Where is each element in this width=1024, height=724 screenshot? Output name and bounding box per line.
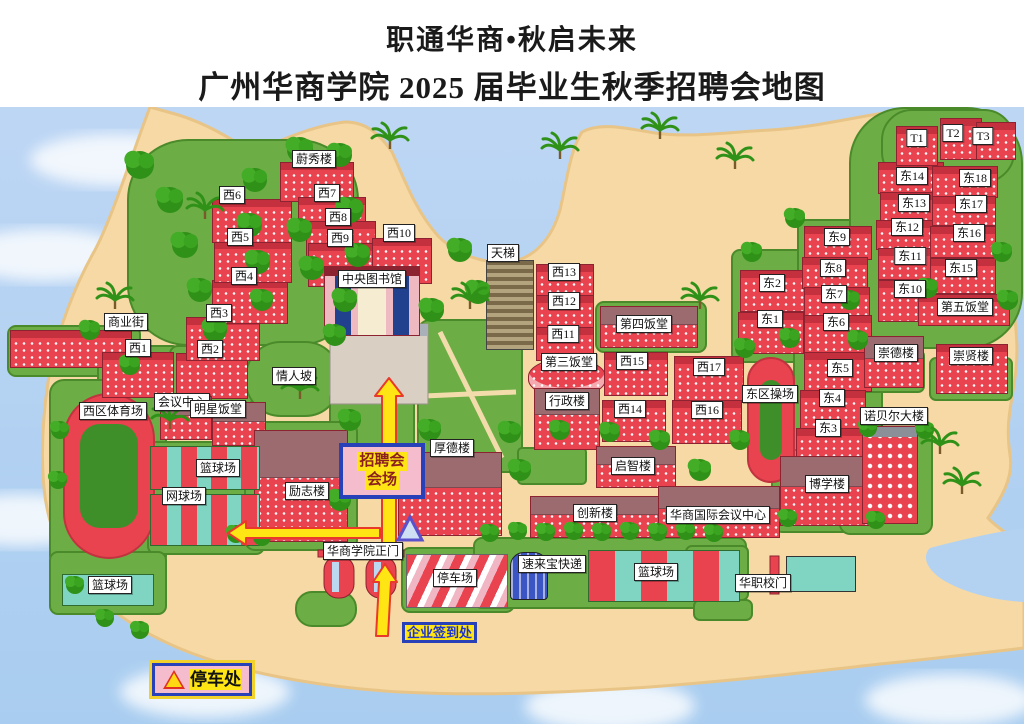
tree-icon <box>688 459 711 481</box>
map-label-网球场: 网球场 <box>162 487 206 505</box>
map-label-篮球场: 篮球场 <box>634 563 678 581</box>
map-label-第五饭堂: 第五饭堂 <box>937 298 993 316</box>
tree-icon <box>508 522 527 540</box>
tree-icon <box>784 208 805 228</box>
map-label-明星饭堂: 明星饭堂 <box>190 400 246 418</box>
palm-tree-icon <box>97 283 133 309</box>
venue-label-line1: 招聘会 <box>357 452 406 471</box>
map-label-东4: 东4 <box>819 389 845 407</box>
map-label-东3: 东3 <box>815 419 841 437</box>
palm-tree-icon <box>944 468 980 494</box>
route-arrow-gate-entry <box>373 564 397 636</box>
map-label-西14: 西14 <box>614 400 646 418</box>
map-label-西4: 西4 <box>231 267 257 285</box>
map-label-行政楼: 行政楼 <box>545 392 589 410</box>
map-label-华商学院正门: 华商学院正门 <box>323 542 403 560</box>
map-label-西1: 西1 <box>125 339 151 357</box>
map-label-西10: 西10 <box>383 224 415 242</box>
map-label-第四饭堂: 第四饭堂 <box>616 315 672 333</box>
tree-icon <box>419 298 444 322</box>
company-signin-callout: 企业签到处 <box>402 622 477 643</box>
palm-tree-icon <box>452 283 488 309</box>
map-label-T2: T2 <box>942 124 963 142</box>
map-label-诺贝尔大楼: 诺贝尔大楼 <box>860 407 928 425</box>
map-label-东8: 东8 <box>820 259 846 277</box>
map-label-东6: 东6 <box>823 313 849 331</box>
map-label-西8: 西8 <box>325 208 351 226</box>
map-label-篮球场: 篮球场 <box>196 459 240 477</box>
job-fair-venue-callout: 招聘会 会场 <box>339 443 425 499</box>
tree-icon <box>130 621 149 639</box>
map-label-篮球场: 篮球场 <box>88 576 132 594</box>
tree-icon <box>418 419 441 441</box>
map-label-东9: 东9 <box>824 228 850 246</box>
warning-triangle-icon <box>163 670 185 689</box>
map-label-西6: 西6 <box>219 186 245 204</box>
map-label-中央图书馆: 中央图书馆 <box>338 270 406 288</box>
building <box>862 426 918 524</box>
palm-tree-icon <box>542 133 578 159</box>
tree-icon <box>447 238 472 262</box>
palm-tree-icon <box>372 123 408 149</box>
map-label-西15: 西15 <box>616 352 648 370</box>
tree-icon <box>508 459 531 481</box>
tree-icon <box>242 168 267 192</box>
map-label-西13: 西13 <box>548 263 580 281</box>
map-label-东5: 东5 <box>827 359 853 377</box>
tree-icon <box>50 421 69 439</box>
tree-icon <box>124 151 154 179</box>
map-label-蔚秀楼: 蔚秀楼 <box>292 150 336 168</box>
tree-icon <box>95 609 114 627</box>
map-label-西3: 西3 <box>206 304 232 322</box>
map-label-速来宝快递: 速来宝快递 <box>518 555 586 573</box>
map-label-励志楼: 励志楼 <box>285 482 329 500</box>
building <box>102 352 174 398</box>
palm-tree-icon <box>717 143 753 169</box>
map-label-东10: 东10 <box>894 280 926 298</box>
parking-callout: 停车处 <box>152 663 252 696</box>
tree-icon <box>48 471 67 489</box>
map-title: 广州华商学院 2025 届毕业生秋季招聘会地图 <box>0 62 1024 107</box>
map-label-东13: 东13 <box>898 194 930 212</box>
map-label-东16: 东16 <box>953 224 985 242</box>
map-label-华商国际会议中心: 华商国际会议中心 <box>666 506 770 524</box>
map-label-情人坡: 情人坡 <box>272 367 316 385</box>
map-label-西区体育场: 西区体育场 <box>79 402 147 420</box>
map-label-西17: 西17 <box>693 358 725 376</box>
map-label-创新楼: 创新楼 <box>573 504 617 522</box>
map-label-博学楼: 博学楼 <box>805 475 849 493</box>
tree-icon <box>187 278 212 302</box>
map-label-西11: 西11 <box>547 325 579 343</box>
parking-label: 停车处 <box>190 669 241 690</box>
map-label-停车场: 停车场 <box>433 569 477 587</box>
map-label-东12: 东12 <box>891 218 923 236</box>
map-label-第三饭堂: 第三饭堂 <box>541 353 597 371</box>
sky-ladder-steps <box>486 260 534 350</box>
map-label-西5: 西5 <box>227 228 253 246</box>
tree-icon <box>498 421 521 443</box>
map-label-东1: 东1 <box>757 310 783 328</box>
map-label-崇贤楼: 崇贤楼 <box>949 347 993 365</box>
tree-icon <box>338 409 361 431</box>
map-label-T3: T3 <box>972 127 993 145</box>
palm-tree-icon <box>642 113 678 139</box>
building <box>786 556 856 592</box>
map-label-东15: 东15 <box>945 259 977 277</box>
map-label-T1: T1 <box>906 129 927 147</box>
venue-label-line2: 会场 <box>365 471 399 490</box>
map-label-东2: 东2 <box>759 274 785 292</box>
event-slogan: 职通华商•秋启未来 <box>0 18 1024 58</box>
map-label-东17: 东17 <box>955 195 987 213</box>
tree-icon <box>170 232 198 258</box>
map-label-西9: 西9 <box>327 229 353 247</box>
map-label-崇德楼: 崇德楼 <box>874 344 918 362</box>
map-label-西7: 西7 <box>314 184 340 202</box>
map-label-东14: 东14 <box>896 167 928 185</box>
map-label-西12: 西12 <box>548 292 580 310</box>
map-label-东区操场: 东区操场 <box>742 385 798 403</box>
map-label-东18: 东18 <box>959 169 991 187</box>
map-label-商业街: 商业街 <box>104 313 148 331</box>
map-label-华职校门: 华职校门 <box>735 574 791 592</box>
map-label-西2: 西2 <box>197 340 223 358</box>
map-label-天梯: 天梯 <box>487 244 519 262</box>
campus-map: 蔚秀楼西6西7西8西5西9西10西4中央图书馆商业街西3西1西2情人坡会议中心明… <box>0 107 1024 724</box>
map-label-东7: 东7 <box>821 285 847 303</box>
map-label-厚德楼: 厚德楼 <box>430 439 474 457</box>
map-label-启智楼: 启智楼 <box>611 457 655 475</box>
map-label-东11: 东11 <box>894 247 926 265</box>
map-label-西16: 西16 <box>691 401 723 419</box>
palm-tree-icon <box>922 428 958 454</box>
tree-icon <box>741 242 762 262</box>
tree-icon <box>155 187 183 213</box>
